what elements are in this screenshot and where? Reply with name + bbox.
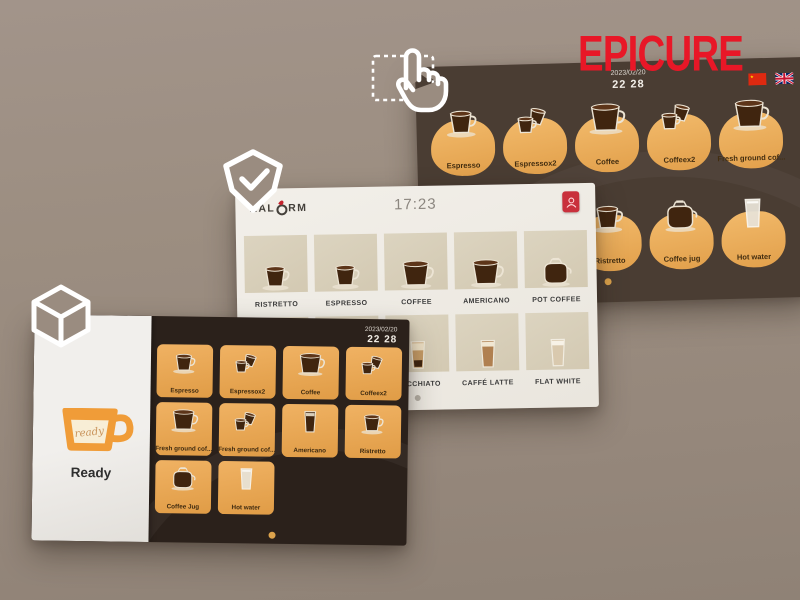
- front-date: 2023/02/20: [365, 326, 398, 335]
- front-button-coffeex2[interactable]: Coffeex2: [345, 347, 402, 401]
- button-label: Hot water: [215, 504, 277, 512]
- tile-caffe-latte[interactable]: CAFFÉ LATTE: [455, 313, 519, 394]
- back-button-espressox2[interactable]: Espressox2: [502, 99, 568, 179]
- button-label: Coffee jug: [646, 253, 718, 264]
- double-espresso-cup-icon: [231, 347, 265, 377]
- china-flag-icon[interactable]: [748, 73, 766, 85]
- check-badge-icon: [218, 146, 288, 218]
- page-indicator-dot: [605, 278, 612, 285]
- clock: 17:23: [235, 193, 595, 216]
- back-button-coffee[interactable]: Coffee: [574, 97, 640, 177]
- tile-label: CAFFÉ LATTE: [448, 379, 527, 387]
- tile-label: RISTRETTO: [237, 301, 316, 309]
- back-button-coffeex2[interactable]: Coffeex2: [646, 95, 712, 175]
- button-label: Coffee: [279, 389, 341, 397]
- back-drinks-row-1: Espresso Espressox2 Coffee Coffeex2 Fres: [430, 94, 784, 181]
- ready-cup-icon: ready: [53, 399, 136, 464]
- uk-flag-icon[interactable]: [775, 72, 793, 84]
- button-label: Espressox2: [499, 158, 571, 169]
- coffee-mug-icon: [583, 98, 630, 137]
- espresso-cup-icon: [356, 407, 390, 437]
- button-label: Coffeex2: [643, 154, 715, 165]
- coffee-mug-icon: [395, 255, 438, 292]
- tile-label: FLAT WHITE: [518, 378, 597, 386]
- cube-3d-icon: [26, 282, 96, 350]
- scene: 2023/02/20 22 28 Espresso Espressox2: [0, 0, 800, 600]
- coffee-jug-icon: [657, 195, 704, 234]
- user-icon: [565, 195, 577, 209]
- espresso-cup-icon: [255, 257, 298, 294]
- front-button-fresh-ground-1[interactable]: Fresh ground cof...: [156, 402, 213, 456]
- front-drinks-grid: Espresso Espressox2 Coffee Coffeex2 Fres…: [155, 344, 402, 516]
- tile-pot-coffee[interactable]: POT COFFEE: [524, 230, 588, 311]
- button-label: Coffeex2: [342, 390, 404, 398]
- button-label: Fresh ground cof...: [715, 152, 787, 163]
- button-label: Americano: [279, 447, 341, 455]
- tile-label: COFFEE: [377, 298, 456, 306]
- espresso-cup-icon: [168, 346, 202, 376]
- button-label: Hot water: [718, 251, 790, 262]
- language-switcher: [748, 72, 793, 85]
- coffee-mug-icon: [727, 94, 774, 133]
- coffee-jug-icon: [166, 462, 200, 492]
- back-button-hot-water[interactable]: Hot water: [720, 193, 786, 273]
- front-button-hot-water[interactable]: Hot water: [218, 461, 275, 515]
- front-button-fresh-ground-2[interactable]: Fresh ground cof...: [219, 403, 276, 457]
- front-button-coffee-jug[interactable]: Coffee Jug: [155, 460, 212, 514]
- tile-ristretto[interactable]: RISTRETTO: [244, 235, 308, 316]
- page-indicator-dot: [268, 532, 275, 539]
- tile-coffee[interactable]: COFFEE: [384, 232, 448, 313]
- button-label: Espresso: [427, 160, 499, 171]
- front-button-ristretto[interactable]: Ristretto: [345, 405, 402, 459]
- water-glass-icon: [229, 463, 263, 493]
- hand-tap-icon: [368, 40, 464, 126]
- front-button-espressox2[interactable]: Espressox2: [219, 345, 276, 399]
- middle-drinks-row-1: RISTRETTO ESPRESSO COFFEE AMERICANO POT: [244, 230, 588, 316]
- tall-coffee-glass-icon: [293, 406, 327, 436]
- tile-label: AMERICANO: [447, 297, 526, 305]
- button-label: Coffee Jug: [152, 503, 214, 511]
- user-button[interactable]: [562, 191, 579, 212]
- button-label: Ristretto: [342, 448, 404, 456]
- front-button-americano[interactable]: Americano: [282, 404, 339, 458]
- back-button-fresh-ground[interactable]: Fresh ground cof...: [718, 94, 784, 174]
- front-button-coffee[interactable]: Coffee: [282, 346, 339, 400]
- back-drinks-row-2: Ristretto Coffee jug Hot water: [576, 193, 786, 276]
- button-label: Fresh ground cof...: [216, 446, 278, 454]
- button-label: Espressox2: [216, 388, 278, 396]
- coffee-pot-icon: [535, 252, 578, 289]
- front-button-espresso[interactable]: Espresso: [156, 344, 213, 398]
- back-button-coffee-jug[interactable]: Coffee jug: [648, 194, 714, 274]
- double-coffee-cup-icon: [230, 405, 264, 435]
- double-coffee-cup-icon: [357, 349, 391, 379]
- double-coffee-cup-icon: [655, 96, 702, 135]
- button-label: Coffee: [571, 156, 643, 167]
- tile-label: ESPRESSO: [307, 300, 386, 308]
- water-glass-icon: [729, 193, 776, 232]
- flat-white-glass-icon: [536, 334, 579, 371]
- tile-espresso[interactable]: ESPRESSO: [314, 234, 378, 315]
- page-indicator-dot: [415, 395, 421, 401]
- button-label: Fresh ground cof...: [153, 445, 215, 453]
- tile-flat-white[interactable]: FLAT WHITE: [525, 312, 589, 393]
- double-espresso-cup-icon: [511, 99, 558, 138]
- epicure-logo: EPICURE: [578, 26, 743, 83]
- front-time: 22 28: [365, 334, 398, 347]
- espresso-cup-icon: [325, 256, 368, 293]
- tile-americano[interactable]: AMERICANO: [454, 231, 518, 312]
- coffee-mug-icon: [167, 404, 201, 434]
- status-label: Ready: [32, 464, 149, 481]
- button-label: Espresso: [153, 387, 215, 395]
- latte-glass-icon: [466, 335, 509, 372]
- front-datetime: 2023/02/20 22 28: [365, 326, 398, 347]
- coffee-mug-icon: [294, 348, 328, 378]
- tile-label: POT COFFEE: [517, 296, 596, 304]
- coffee-mug-icon: [465, 253, 508, 290]
